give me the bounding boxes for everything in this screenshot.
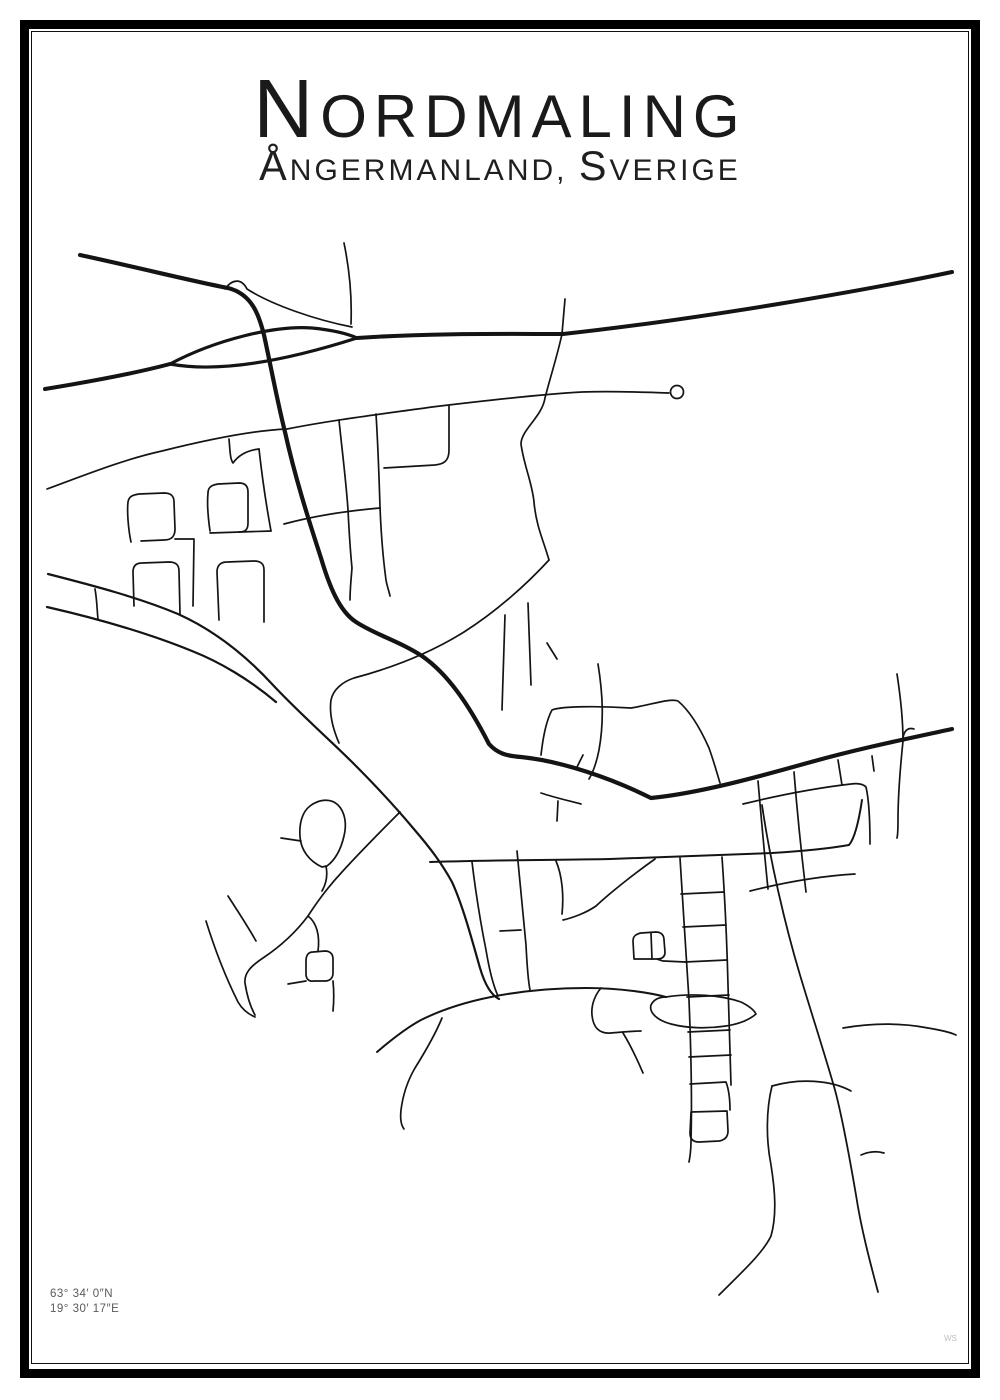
- watermark-logo: WS: [944, 1334, 957, 1343]
- poster-subtitle: Ångermanland, Sverige: [0, 154, 1000, 189]
- title-block: Nordmaling Ångermanland, Sverige: [0, 84, 1000, 189]
- initial-capital: S: [579, 143, 610, 189]
- longitude-text: 19° 30′ 17″E: [50, 1302, 119, 1317]
- initial-capital: N: [253, 62, 320, 155]
- poster-title: Nordmaling: [0, 84, 1000, 150]
- initial-capital: Å: [259, 143, 290, 189]
- poster-inner-border: [31, 31, 969, 1364]
- latitude-text: 63° 34′ 0″N: [50, 1287, 119, 1302]
- coordinates-block: 63° 34′ 0″N 19° 30′ 17″E: [50, 1287, 119, 1317]
